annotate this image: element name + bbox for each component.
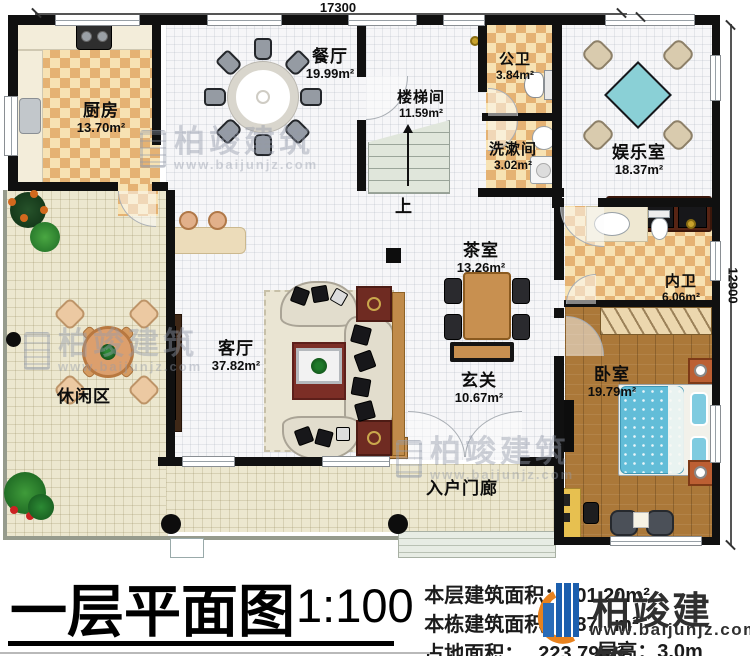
porch-column — [161, 514, 181, 534]
label-public-bath: 公卫 3.84m² — [488, 52, 542, 82]
dining-chair — [300, 88, 322, 106]
patio-plant — [100, 344, 116, 360]
porch-steps — [398, 531, 556, 558]
window — [605, 14, 695, 26]
tea-chair — [512, 278, 530, 304]
window — [207, 14, 282, 26]
wall — [357, 120, 366, 191]
console-table — [392, 292, 405, 456]
wall — [554, 356, 564, 545]
rail-column — [6, 332, 21, 347]
window — [443, 14, 485, 26]
room-name: 入户门廊 — [414, 480, 510, 499]
end-table — [356, 286, 392, 322]
kitchen-sink — [19, 98, 41, 134]
room-name: 厨房 — [58, 102, 144, 121]
wardrobe — [600, 307, 712, 335]
dim-right-label: 12900 — [726, 241, 741, 331]
plant-berry — [40, 206, 48, 214]
plant-berry — [30, 190, 38, 198]
brand-name: 柏竣建筑 — [592, 580, 750, 656]
porch-column — [388, 514, 408, 534]
bar-stool — [179, 211, 198, 230]
shower-knob — [686, 219, 696, 229]
nightstand-lamp — [694, 364, 707, 377]
tea-chair — [444, 278, 462, 304]
plant — [28, 494, 54, 520]
room-name: 内卫 — [650, 274, 712, 291]
label-kitchen: 厨房 13.70m² — [58, 102, 144, 135]
dining-chair — [254, 134, 272, 156]
wall — [478, 188, 564, 197]
stairs-arrowhead — [403, 124, 413, 133]
side-table — [633, 512, 649, 528]
stairs-up-label: 上 — [390, 198, 418, 217]
stairs-arrow — [407, 130, 409, 186]
end-table — [356, 420, 392, 456]
room-name: 娱乐室 — [596, 144, 682, 163]
label-dining: 餐厅 19.99m² — [288, 48, 372, 81]
wall — [233, 457, 324, 466]
wall — [554, 308, 564, 318]
room-area: 13.26m² — [444, 261, 518, 275]
dining-table-center — [256, 90, 270, 104]
room-area: 10.67m² — [440, 391, 518, 405]
plant-berry — [8, 198, 16, 206]
page-scale: 1:100 — [296, 578, 414, 633]
structural-column — [386, 248, 401, 263]
wall — [152, 15, 161, 145]
logo-tower — [556, 583, 579, 637]
room-area: 3.84m² — [488, 69, 542, 82]
sofa-pillow — [336, 427, 350, 441]
label-stairwell: 楼梯间 11.59m² — [382, 90, 460, 120]
label-porch: 入户门廊 — [414, 480, 510, 499]
floorplan-sheet: 上 — [0, 0, 750, 656]
end-table-medallion — [367, 431, 381, 445]
dim-top-line — [35, 13, 627, 15]
nightstand — [688, 460, 714, 486]
page-title: 一层平面图 — [10, 566, 295, 648]
wall — [478, 15, 487, 92]
end-table-medallion — [367, 297, 381, 311]
brand-url: www.baijunjz.com — [589, 620, 750, 640]
room-name: 楼梯间 — [382, 90, 460, 107]
nightstand-lamp — [694, 466, 707, 479]
plant — [30, 222, 60, 252]
room-name: 休闲区 — [44, 388, 124, 407]
plant-berry — [20, 214, 28, 222]
room-name: 茶室 — [444, 242, 518, 261]
side-counter — [170, 227, 246, 254]
wall — [552, 15, 562, 208]
window — [710, 405, 721, 463]
room-area: 37.82m² — [196, 359, 276, 373]
burner — [81, 31, 92, 42]
room-area: 19.99m² — [288, 67, 372, 81]
window — [4, 96, 18, 156]
window — [348, 14, 417, 26]
room-area: 3.02m² — [482, 159, 544, 172]
room-name: 洗漱间 — [482, 142, 544, 159]
dining-chair — [204, 88, 226, 106]
dining-chair — [254, 38, 272, 60]
toilet — [648, 210, 670, 218]
wall — [8, 182, 118, 191]
bar-stool — [208, 211, 227, 230]
label-living: 客厅 37.82m² — [196, 340, 276, 373]
label-inner-bath: 内卫 6.06m² — [650, 274, 712, 304]
room-area: 13.70m² — [58, 121, 144, 135]
title-underline — [8, 641, 394, 646]
nightstand — [688, 358, 714, 384]
window — [322, 456, 390, 467]
logo-tower-small — [543, 603, 554, 637]
wall — [158, 457, 184, 466]
room-area: 6.06m² — [650, 291, 712, 304]
window — [182, 456, 235, 467]
bedroom-chair — [646, 510, 674, 536]
wall — [598, 198, 712, 207]
room-name: 餐厅 — [288, 48, 372, 67]
toilet-bowl — [651, 218, 668, 240]
sofa-pillow — [351, 377, 372, 398]
tea-table — [463, 272, 511, 340]
room-area: 19.79m² — [570, 385, 654, 399]
desk-chair — [583, 502, 599, 524]
bedroom-tv — [564, 400, 574, 452]
label-foyer: 玄关 10.67m² — [440, 372, 518, 405]
room-name: 卧室 — [570, 366, 654, 385]
room-name: 客厅 — [196, 340, 276, 359]
tea-chair — [512, 314, 530, 340]
wall — [520, 457, 556, 466]
room-name: 玄关 — [440, 372, 518, 391]
window — [710, 55, 721, 101]
table-plant — [311, 358, 327, 374]
plant-flower — [10, 506, 18, 514]
bench-cushion — [454, 346, 510, 358]
label-entertainment: 娱乐室 18.37m² — [596, 144, 682, 177]
room-area: 11.59m² — [382, 107, 460, 120]
bed-blanket-fold — [668, 386, 684, 474]
room-area: 18.37m² — [596, 163, 682, 177]
brand-logo-icon — [541, 583, 589, 647]
room-name: 公卫 — [488, 52, 542, 69]
window — [610, 536, 702, 546]
tea-chair — [444, 314, 462, 340]
label-bedroom: 卧室 19.79m² — [570, 366, 654, 399]
label-tea-room: 茶室 13.26m² — [444, 242, 518, 275]
bed-pillow — [690, 392, 708, 426]
column-base — [170, 538, 204, 558]
title-underline-thin — [0, 652, 430, 654]
info-label: 占地面积： — [424, 643, 524, 656]
label-washroom: 洗漱间 3.02m² — [482, 142, 544, 172]
sofa-pillow — [311, 285, 330, 304]
burner — [97, 31, 108, 42]
stove — [76, 22, 112, 50]
label-leisure: 休闲区 — [44, 388, 124, 407]
window — [55, 14, 140, 26]
wall — [166, 190, 175, 466]
foyer-bench — [450, 342, 514, 362]
stairs-up-text: 上 — [390, 198, 418, 217]
